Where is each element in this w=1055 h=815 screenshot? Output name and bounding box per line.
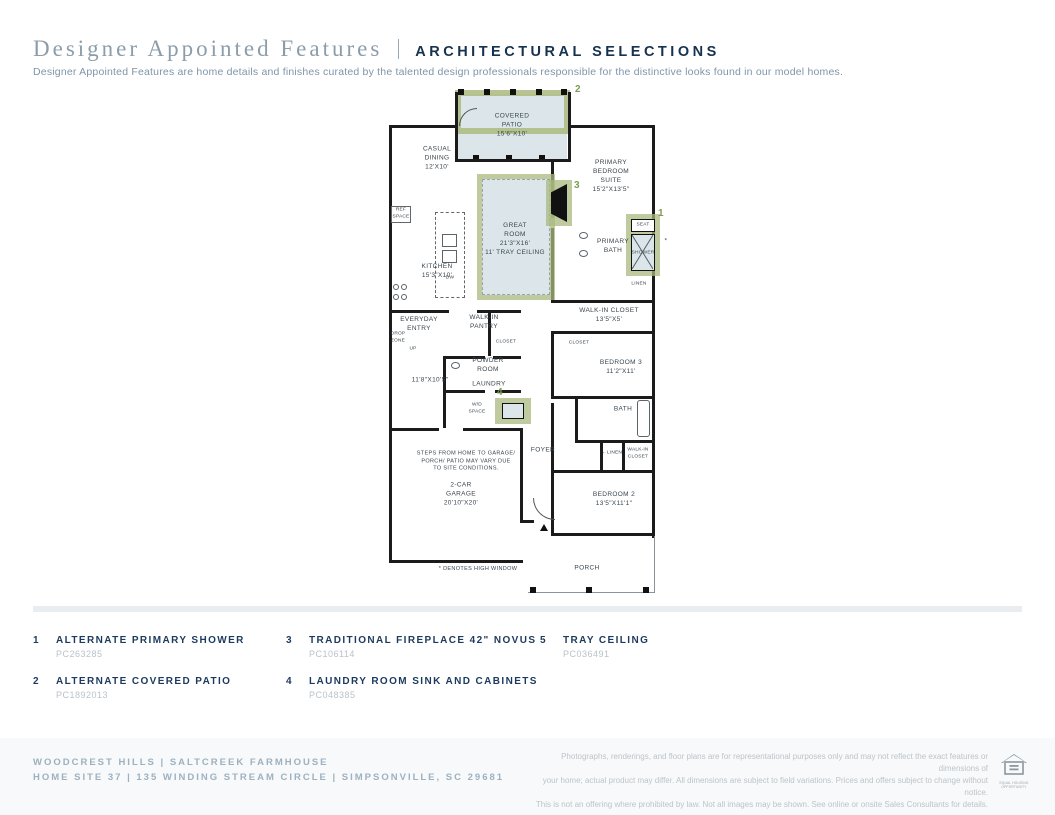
cooktop-burner: [393, 294, 399, 300]
marker-4-laundry-sink: 4: [497, 387, 503, 398]
bath-sink: [579, 250, 588, 257]
bathtub: [637, 400, 650, 437]
powder-sink: [451, 362, 460, 369]
legend-number: 3: [286, 635, 293, 646]
room-label-bedroom2: BEDROOM 2 13'5"X11'1": [593, 490, 635, 508]
equal-housing-house-icon: [1001, 754, 1027, 776]
entry-marker-icon: [540, 524, 548, 531]
wall: [389, 310, 449, 313]
legend-item-5: 5 TRAY CEILING PC036491: [540, 635, 790, 669]
wall: [622, 440, 625, 470]
footer-disclaimer: Photographs, renderings, and floor plans…: [520, 751, 988, 811]
island-sink: [442, 234, 457, 247]
room-label-powder-room: POWDER ROOM: [472, 356, 503, 374]
room-label-laundry: LAUNDRY: [472, 379, 505, 388]
room-label-ref-space: REF SPACE: [393, 207, 410, 220]
note-high-window: * DENOTES HIGH WINDOW: [439, 566, 518, 574]
patio-post: [458, 89, 464, 95]
room-label-great-room: GREAT ROOM 21'3"X16' 11' TRAY CEILING: [485, 221, 545, 257]
marker-3-fireplace: 3: [574, 180, 580, 191]
wall: [520, 428, 523, 523]
wall: [551, 331, 655, 334]
legend-code: PC263285: [56, 649, 103, 659]
wall: [568, 92, 571, 159]
room-label-primary-suite: PRIMARY BEDROOM SUITE 15'2"X13'5": [593, 158, 630, 194]
legend-title: TRAY CEILING: [563, 635, 649, 646]
room-label-everyday-entry: EVERYDAY ENTRY: [400, 315, 438, 333]
legend-code: PC048385: [309, 690, 356, 700]
room-label-flex-dims: 11'8"X10'5": [412, 375, 449, 384]
wall: [463, 428, 521, 431]
room-label-drop-zone: DROP ZONE: [391, 331, 406, 344]
room-label-bath2: BATH: [614, 404, 632, 413]
room-label-shower: SHOWER: [632, 251, 655, 258]
legend-title: LAUNDRY ROOM SINK AND CABINETS: [309, 676, 538, 687]
room-label-bedroom3: BEDROOM 3 11'2"X11': [600, 358, 642, 376]
wall: [389, 125, 457, 128]
wall: [575, 396, 578, 443]
marker-1-shower: 1: [658, 208, 664, 219]
wall: [575, 440, 655, 443]
wall: [551, 403, 554, 473]
wall: [551, 300, 655, 303]
wall: [520, 520, 534, 523]
room-label-garage: 2-CAR GARAGE 20'10"X20': [444, 480, 478, 507]
cooktop-burner: [393, 284, 399, 290]
legend-number: 4: [286, 676, 293, 687]
footer-community: WOODCREST HILLS | SALTCREEK FARMHOUSE: [33, 757, 329, 768]
note-steps: STEPS FROM HOME TO GARAGE/ PORCH/ PATIO …: [417, 450, 515, 473]
page-description: Designer Appointed Features are home det…: [33, 66, 843, 78]
room-label-kitchen: KITCHEN 15'3"X10': [422, 262, 453, 280]
room-label-casual-dining: CASUAL DINING 12'X10': [423, 144, 451, 171]
legend-code: PC106114: [309, 649, 355, 659]
legend-code: PC1892013: [56, 690, 108, 700]
room-label-covered-patio: COVERED PATIO 15'6"X10': [495, 111, 530, 138]
high-window-asterisk: *: [665, 236, 668, 245]
wall: [455, 92, 458, 159]
room-label-walk-in-closet-bed2: WALK-IN CLOSET: [627, 447, 648, 460]
legend-item-3: 3 TRADITIONAL FIREPLACE 42" NOVUS PC1061…: [286, 635, 536, 669]
legend-title: ALTERNATE PRIMARY SHOWER: [56, 635, 245, 646]
title-divider: [398, 39, 399, 59]
patio-post: [510, 89, 516, 95]
room-label-porch: PORCH: [574, 563, 599, 572]
legend-number: 5: [540, 635, 547, 646]
bath-sink: [579, 232, 588, 239]
legend-code: PC036491: [563, 649, 610, 659]
room-label-closet-bed3: CLOSET: [569, 341, 589, 348]
room-label-primary-bath: PRIMARY BATH: [597, 237, 629, 255]
room-label-wd-space: W/D SPACE: [469, 402, 486, 415]
room-label-foyer: FOYER: [531, 445, 555, 454]
room-label-walk-in-closet-primary: WALK-IN CLOSET 13'5"X5': [579, 306, 639, 324]
room-label-linen-upper: LINEN: [631, 282, 646, 289]
wall: [551, 396, 655, 399]
footer-address: HOME SITE 37 | 135 WINDING STREAM CIRCLE…: [33, 772, 504, 783]
legend-title: ALTERNATE COVERED PATIO: [56, 676, 231, 687]
page-title: Designer Appointed Features: [33, 36, 382, 62]
porch-post: [530, 587, 536, 593]
marker-2-covered-patio: 2: [575, 84, 581, 95]
wall: [443, 390, 485, 393]
wall: [389, 560, 523, 563]
section-divider: [33, 606, 1022, 612]
legend-item-2: 2 ALTERNATE COVERED PATIO PC1892013: [33, 676, 283, 710]
wall: [568, 125, 655, 128]
page-header: Designer Appointed Features ARCHITECTURA…: [33, 36, 720, 62]
laundry-sink-icon: [502, 403, 524, 419]
patio-post: [561, 89, 567, 95]
equal-housing-label: EQUAL HOUSING OPPORTUNITY: [999, 781, 1029, 789]
patio-post: [536, 89, 542, 95]
equal-housing-logo: EQUAL HOUSING OPPORTUNITY: [999, 754, 1029, 789]
legend-title: TRADITIONAL FIREPLACE 42" NOVUS: [309, 635, 536, 646]
legend-item-4: 4 LAUNDRY ROOM SINK AND CABINETS PC04838…: [286, 676, 536, 710]
floor-plan: 2: [385, 88, 675, 600]
cooktop-burner: [401, 284, 407, 290]
page-subtitle-tag: ARCHITECTURAL SELECTIONS: [415, 44, 719, 60]
room-label-seat: SEAT: [637, 223, 650, 230]
porch-post: [643, 587, 649, 593]
legend-number: 2: [33, 676, 40, 687]
room-label-up: UP: [409, 347, 416, 354]
cooktop-burner: [401, 294, 407, 300]
porch-post: [586, 587, 592, 593]
wall: [551, 470, 655, 473]
legend-item-1: 1 ALTERNATE PRIMARY SHOWER PC263285: [33, 635, 283, 669]
page: Designer Appointed Features ARCHITECTURA…: [0, 0, 1055, 815]
legend-number: 1: [33, 635, 40, 646]
front-door-arc: [533, 498, 555, 520]
room-label-linen-lower: ←LINEN: [602, 451, 622, 458]
room-label-closet-hall: CLOSET: [496, 340, 516, 347]
wall: [443, 356, 446, 428]
patio-post: [484, 89, 490, 95]
wall: [389, 428, 439, 431]
room-label-walk-in-pantry: WALK-IN PANTRY: [469, 313, 498, 331]
wall: [551, 331, 554, 396]
